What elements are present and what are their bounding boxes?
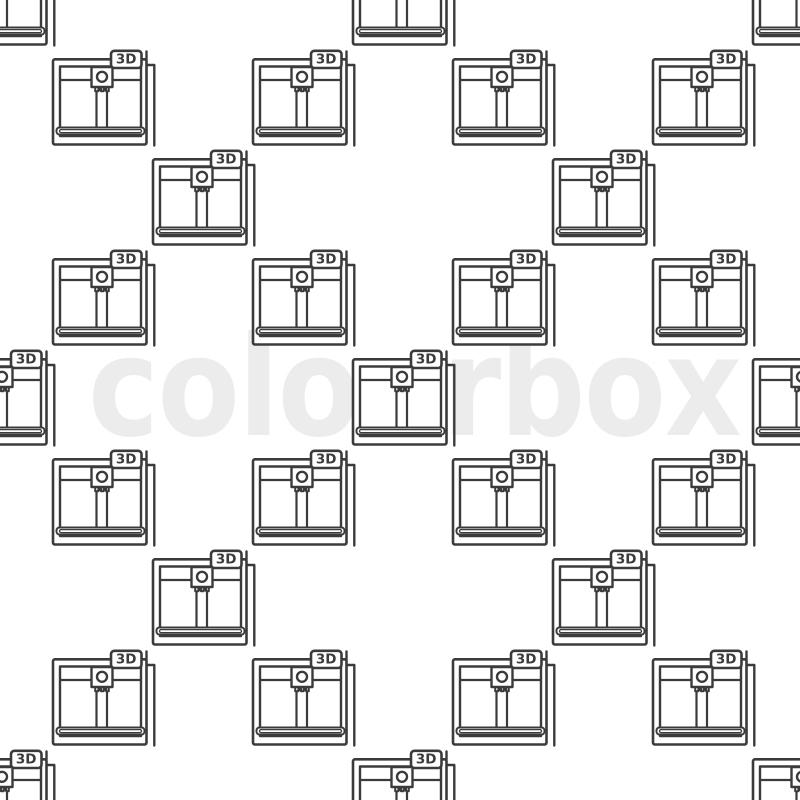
3d-printer-icon: 3D — [150, 150, 260, 250]
3d-printer-icon: 3D — [350, 750, 460, 800]
printer-column — [697, 690, 708, 729]
printer-column — [497, 690, 508, 729]
printer-tag-label: 3D — [216, 552, 237, 568]
printer-head-dial — [397, 372, 407, 382]
printer-tag-label: 3D — [516, 52, 537, 68]
printer-tag-label: 3D — [116, 252, 137, 268]
printer-bed — [457, 128, 545, 135]
printer-bed — [757, 428, 800, 435]
printer-column — [297, 90, 308, 129]
printer-tag-label: 3D — [16, 352, 37, 368]
printer-head-dial — [497, 472, 507, 482]
3d-printer-icon: 3D — [550, 550, 660, 650]
printer-tag-label: 3D — [116, 652, 137, 668]
3d-printer-icon: 3D — [250, 250, 360, 350]
pattern-canvas: colourbox 3D — [0, 0, 800, 800]
printer-column — [497, 490, 508, 529]
printer-head-dial — [0, 372, 7, 382]
printer-bed — [157, 228, 245, 235]
printer-bed — [557, 228, 645, 235]
printer-head-dial — [297, 72, 307, 82]
printer-head-dial — [0, 772, 7, 782]
printer-tag-label: 3D — [616, 552, 637, 568]
printer-bed — [0, 28, 45, 35]
printer-head-dial — [297, 272, 307, 282]
printer-tag-label: 3D — [16, 752, 37, 768]
printer-head-dial — [697, 72, 707, 82]
printer-bed — [557, 628, 645, 635]
printer-column — [97, 690, 108, 729]
3d-printer-icon: 3D — [0, 350, 60, 450]
3d-printer-icon: 3D — [750, 750, 800, 800]
printer-tag-label: 3D — [516, 452, 537, 468]
printer-tag-label: 3D — [416, 752, 437, 768]
printer-tag-label: 3D — [116, 52, 137, 68]
printer-tag-label: 3D — [316, 252, 337, 268]
3d-printer-icon: 3D — [450, 250, 560, 350]
printer-bed — [457, 328, 545, 335]
printer-bed — [657, 128, 745, 135]
printer-head-dial — [97, 672, 107, 682]
printer-head-dial — [597, 572, 607, 582]
printer-head-dial — [497, 272, 507, 282]
3d-printer-icon: 3D — [50, 450, 160, 550]
printer-bed — [0, 428, 45, 435]
printer-bed — [57, 728, 145, 735]
printer-bed — [657, 328, 745, 335]
printer-column — [0, 390, 7, 429]
3d-printer-icon: 3D — [650, 250, 760, 350]
printer-tag-label: 3D — [716, 652, 737, 668]
printer-bed — [757, 28, 800, 35]
3d-printer-icon: 3D — [750, 0, 800, 50]
3d-printer-icon: 3D — [50, 50, 160, 150]
printer-head-dial — [697, 672, 707, 682]
printer-column — [397, 390, 408, 429]
printer-column — [297, 690, 308, 729]
printer-column — [197, 590, 208, 629]
3d-printer-icon: 3D — [650, 50, 760, 150]
printer-bed — [657, 728, 745, 735]
printer-column — [697, 290, 708, 329]
printer-tag-label: 3D — [316, 652, 337, 668]
printer-column — [0, 0, 7, 29]
printer-head-dial — [297, 472, 307, 482]
3d-printer-icon: 3D — [0, 750, 60, 800]
printer-bed — [657, 528, 745, 535]
3d-printer-icon: 3D — [750, 350, 800, 450]
printer-column — [697, 490, 708, 529]
printer-head-dial — [97, 272, 107, 282]
3d-printer-icon: 3D — [150, 550, 260, 650]
printer-bed — [357, 28, 445, 35]
printer-tag-label: 3D — [416, 352, 437, 368]
printer-head-dial — [497, 72, 507, 82]
printer-tag-label: 3D — [616, 152, 637, 168]
printer-bed — [257, 128, 345, 135]
printer-head-dial — [697, 472, 707, 482]
printer-tag-label: 3D — [116, 452, 137, 468]
printer-column — [797, 390, 800, 429]
3d-printer-icon: 3D — [50, 650, 160, 750]
printer-column — [197, 190, 208, 229]
icon-grid: 3D 3D — [0, 0, 800, 800]
printer-column — [597, 590, 608, 629]
printer-tag-label: 3D — [516, 652, 537, 668]
printer-bed — [157, 628, 245, 635]
printer-column — [97, 90, 108, 129]
3d-printer-icon: 3D — [0, 0, 60, 50]
3d-printer-icon: 3D — [350, 0, 460, 50]
printer-bed — [457, 728, 545, 735]
printer-column — [297, 290, 308, 329]
printer-column — [697, 90, 708, 129]
3d-printer-icon: 3D — [250, 450, 360, 550]
printer-bed — [57, 328, 145, 335]
printer-bed — [57, 528, 145, 535]
printer-tag-label: 3D — [716, 252, 737, 268]
printer-column — [797, 0, 800, 29]
printer-bed — [457, 528, 545, 535]
printer-bed — [257, 728, 345, 735]
printer-head-dial — [97, 472, 107, 482]
3d-printer-icon: 3D — [350, 350, 460, 450]
printer-head-dial — [297, 672, 307, 682]
printer-column — [397, 0, 408, 29]
printer-head-dial — [197, 172, 207, 182]
3d-printer-icon: 3D — [450, 450, 560, 550]
printer-tag-label: 3D — [716, 452, 737, 468]
printer-head-dial — [597, 172, 607, 182]
printer-bed — [257, 528, 345, 535]
3d-printer-icon: 3D — [450, 650, 560, 750]
printer-column — [497, 290, 508, 329]
printer-column — [97, 490, 108, 529]
printer-head-dial — [697, 272, 707, 282]
printer-tag-label: 3D — [216, 152, 237, 168]
printer-head-dial — [397, 772, 407, 782]
printer-tag-label: 3D — [316, 52, 337, 68]
3d-printer-icon: 3D — [650, 450, 760, 550]
printer-column — [497, 90, 508, 129]
printer-tag-label: 3D — [716, 52, 737, 68]
printer-head-dial — [97, 72, 107, 82]
printer-head-dial — [197, 572, 207, 582]
printer-bed — [57, 128, 145, 135]
printer-head-dial — [497, 672, 507, 682]
3d-printer-icon: 3D — [550, 150, 660, 250]
3d-printer-icon: 3D — [250, 650, 360, 750]
3d-printer-icon: 3D — [50, 250, 160, 350]
printer-tag-label: 3D — [516, 252, 537, 268]
printer-column — [597, 190, 608, 229]
printer-column — [297, 490, 308, 529]
3d-printer-icon: 3D — [250, 50, 360, 150]
3d-printer-icon: 3D — [650, 650, 760, 750]
3d-printer-icon: 3D — [450, 50, 560, 150]
printer-bed — [357, 428, 445, 435]
printer-column — [97, 290, 108, 329]
printer-bed — [257, 328, 345, 335]
printer-tag-label: 3D — [316, 452, 337, 468]
